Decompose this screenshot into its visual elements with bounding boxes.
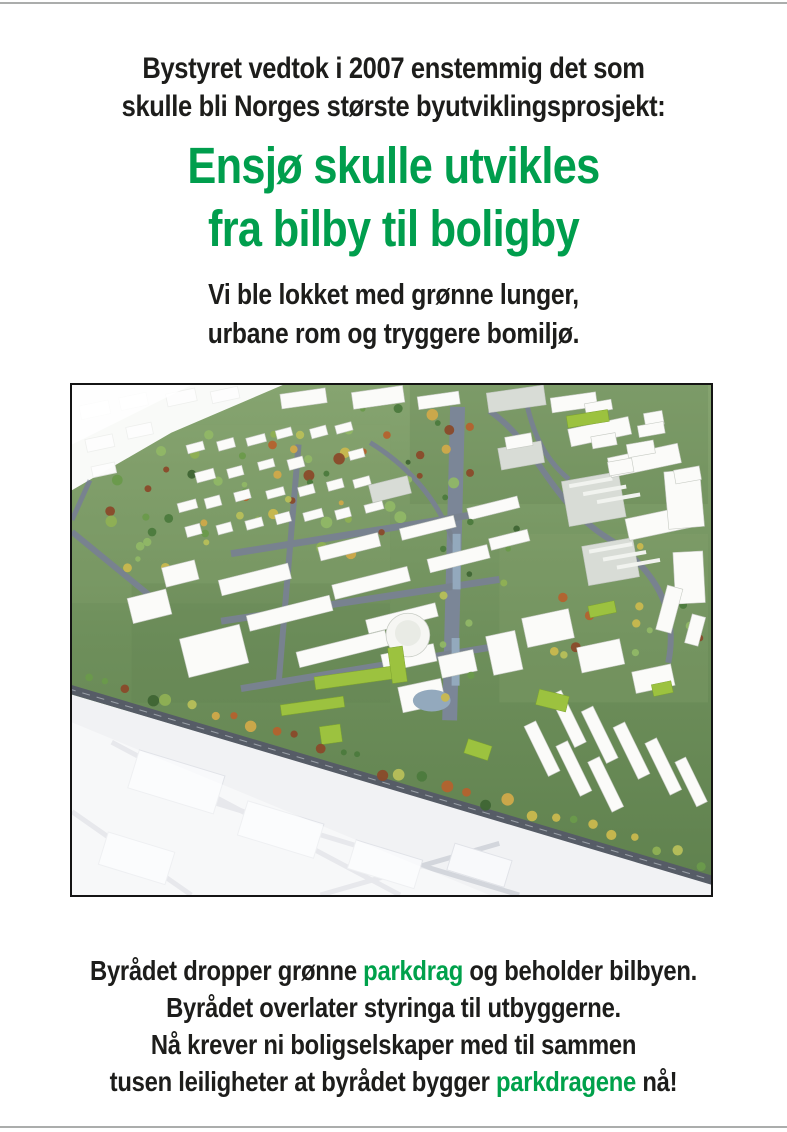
subtitle-line-1: Vi ble lokket med grønne lunger, <box>59 276 728 315</box>
bottom-divider <box>0 1126 787 1128</box>
headline-line-2: fra bilby til boligby <box>59 197 728 260</box>
footer-line-4-pre: tusen leiligheter at byrådet bygger <box>110 1066 496 1097</box>
footer-line-1-post: og beholder bilbyen. <box>463 955 697 986</box>
footer-line-3: Nå krever ni boligselskaper med til samm… <box>59 1026 728 1063</box>
top-divider <box>0 2 787 4</box>
headline: Ensjø skulle utvikles fra bilby til boli… <box>59 134 728 260</box>
aerial-rendering-svg <box>72 385 711 895</box>
subtitle-line-2: urbane rom og tryggere bomiljø. <box>59 315 728 354</box>
flyer-page: Bystyret vedtok i 2007 enstemmig det som… <box>0 0 787 1132</box>
footer-line-4-green-word: parkdragene <box>496 1066 636 1097</box>
closing-text: Byrådet dropper grønne parkdrag og behol… <box>59 952 728 1100</box>
intro-line-2: skulle bli Norges største byutviklingspr… <box>59 88 728 126</box>
footer-line-1-pre: Byrådet dropper grønne <box>90 955 363 986</box>
footer-line-4-post: nå! <box>636 1066 677 1097</box>
subtitle: Vi ble lokket med grønne lunger, urbane … <box>59 276 728 354</box>
headline-line-1: Ensjø skulle utvikles <box>59 134 728 197</box>
footer-line-2: Byrådet overlater styringa til utbyggern… <box>59 989 728 1026</box>
footer-line-1: Byrådet dropper grønne parkdrag og behol… <box>59 952 728 989</box>
footer-line-4: tusen leiligheter at byrådet bygger park… <box>59 1063 728 1100</box>
footer-line-1-green-word: parkdrag <box>363 955 463 986</box>
aerial-rendering-image <box>70 383 713 897</box>
intro-text: Bystyret vedtok i 2007 enstemmig det som… <box>59 50 728 126</box>
intro-line-1: Bystyret vedtok i 2007 enstemmig det som <box>59 50 728 88</box>
